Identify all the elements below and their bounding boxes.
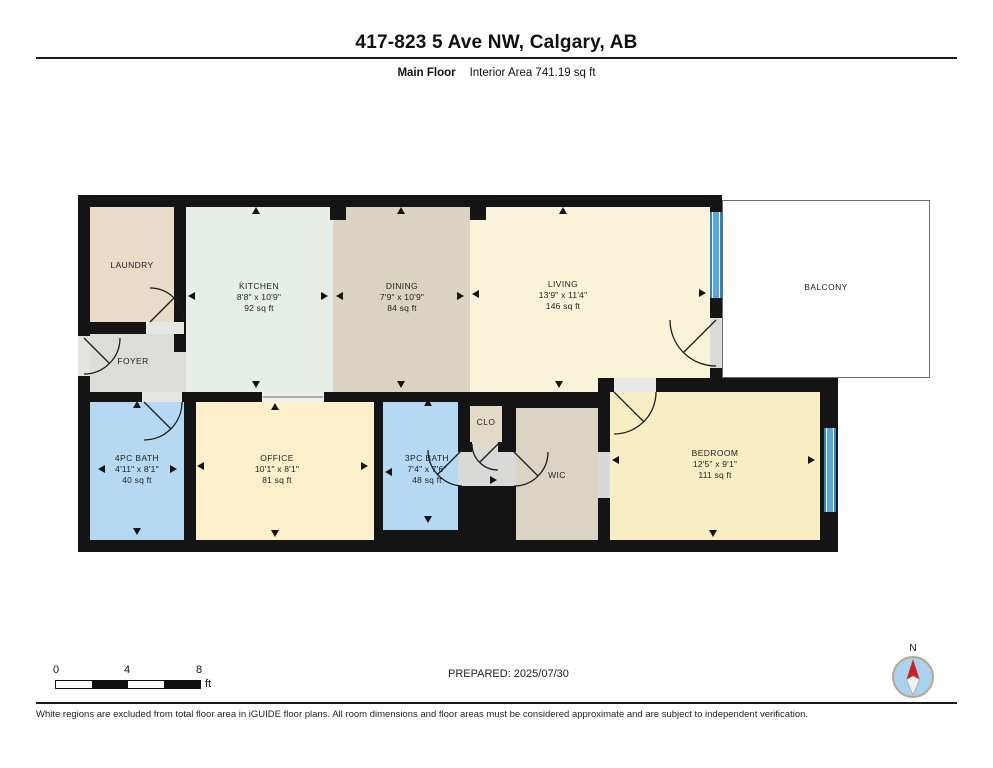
dimension-arrow-left (188, 292, 195, 300)
scale-tick-0: 0 (49, 664, 63, 676)
dimension-arrow-down (133, 528, 141, 535)
dimension-arrow-up (424, 399, 432, 406)
room-label-clo: CLO (421, 417, 551, 428)
floor-plan-page: 417-823 5 Ave NW, Calgary, AB Main Floor… (0, 0, 993, 768)
room-label-kitchen: KITCHEN8'8" x 10'9"92 sq ft (194, 281, 324, 314)
scale-bar-segments (55, 680, 201, 689)
balcony-door-gap (710, 318, 722, 368)
dimension-arrow-up (559, 207, 567, 214)
dimension-arrow-right (699, 289, 706, 297)
room-label-dining: DINING7'9" x 10'9"84 sq ft (337, 281, 467, 314)
floor-subtitle: Main FloorInterior Area 741.19 sq ft (0, 67, 993, 79)
room-label-bedroom: BEDROOM12'5" x 9'1"111 sq ft (650, 448, 780, 481)
room-label-foyer: FOYER (68, 356, 198, 367)
footer-disclaimer: White regions are excluded from total fl… (36, 709, 808, 720)
dimension-arrow-down (252, 381, 260, 388)
clo-door-gap (472, 442, 498, 452)
dimension-arrow-left (197, 462, 204, 470)
dimension-arrow-left (385, 468, 392, 476)
dimension-arrow-down (555, 381, 563, 388)
living-window (710, 212, 722, 298)
bedroom-window (824, 428, 836, 512)
scale-tick-4: 4 (120, 664, 134, 676)
dimension-arrow-left (472, 290, 479, 298)
laundry-door-gap (146, 322, 184, 334)
room-label-balcony: BALCONY (761, 282, 891, 293)
dimension-arrow-right (808, 456, 815, 464)
room-label-living: LIVING13'9" x 11'4"146 sq ft (498, 279, 628, 312)
prepared-date: PREPARED: 2025/07/30 (448, 668, 569, 680)
dimension-arrow-down (397, 381, 405, 388)
scale-unit-label: ft (205, 678, 211, 690)
compass-icon: N (882, 640, 944, 702)
dimension-arrow-up (133, 401, 141, 408)
dimension-arrow-up (709, 384, 717, 391)
dimension-arrow-left (612, 456, 619, 464)
room-label-wic: WIC (492, 470, 622, 481)
bedroom-door-gap (614, 378, 656, 392)
dimension-arrow-down (709, 530, 717, 537)
dimension-arrow-right (457, 292, 464, 300)
dimension-arrow-right (321, 292, 328, 300)
dimension-arrow-down (424, 516, 432, 523)
room-label-bath4: 4PC BATH4'11" x 8'1"40 sq ft (72, 453, 202, 486)
room-label-office: OFFICE10'1" x 8'1"81 sq ft (212, 453, 342, 486)
wall-stub-dining-living (470, 207, 486, 220)
dimension-arrow-down (271, 530, 279, 537)
wall-stub-kitchen-dining (330, 207, 346, 220)
dimension-arrow-right (170, 465, 177, 473)
room-label-laundry: LAUNDRY (67, 260, 197, 271)
room-living-ext (470, 378, 598, 392)
dimension-arrow-left (336, 292, 343, 300)
header-divider (36, 57, 957, 59)
floor-name: Main Floor (397, 67, 455, 79)
scale-tick-8: 8 (192, 664, 206, 676)
dimension-arrow-up (397, 207, 405, 214)
room-label-bath3: 3PC BATH7'4" x 7'6"48 sq ft (362, 453, 492, 486)
dimension-arrow-up (252, 207, 260, 214)
dimension-arrow-left (98, 465, 105, 473)
dimension-arrow-up (271, 403, 279, 410)
kitchen-office-opening (262, 392, 324, 402)
compass-north-label: N (909, 643, 916, 654)
dimension-arrow-right (361, 462, 368, 470)
dimension-arrow-right (490, 476, 497, 484)
page-title: 417-823 5 Ave NW, Calgary, AB (0, 32, 993, 54)
bath4-door-gap (142, 392, 182, 402)
interior-area: Interior Area 741.19 sq ft (470, 67, 596, 79)
footer-divider (36, 702, 957, 704)
